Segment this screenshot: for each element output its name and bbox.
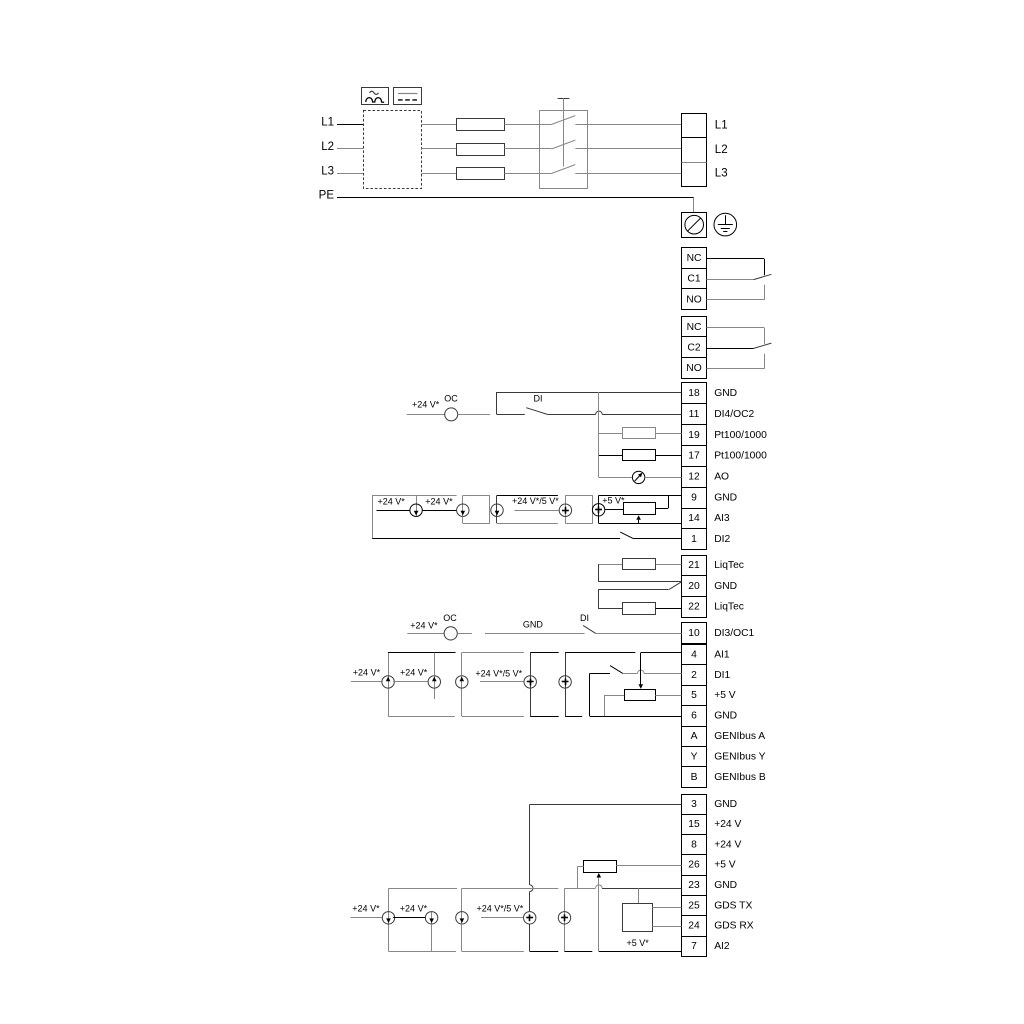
svg-text:Y: Y: [691, 751, 698, 762]
svg-text:+5 V*: +5 V*: [602, 495, 625, 505]
svg-text:6: 6: [691, 711, 697, 722]
svg-text:OC: OC: [444, 393, 458, 403]
svg-text:GND: GND: [714, 492, 737, 503]
svg-text:10: 10: [688, 628, 700, 639]
svg-text:GDS TX: GDS TX: [714, 900, 752, 911]
svg-text:GND: GND: [714, 799, 737, 810]
svg-text:DI3/OC1: DI3/OC1: [714, 628, 754, 639]
svg-text:4: 4: [691, 649, 697, 660]
svg-text:25: 25: [688, 900, 700, 911]
svg-text:+24 V*: +24 V*: [425, 497, 453, 507]
svg-text:NO: NO: [686, 363, 701, 374]
svg-text:NC: NC: [687, 322, 702, 333]
svg-text:L1: L1: [321, 117, 334, 129]
svg-text:11: 11: [689, 409, 700, 420]
svg-text:19: 19: [688, 430, 700, 441]
svg-text:+24 V: +24 V: [714, 839, 741, 850]
svg-text:14: 14: [688, 513, 700, 524]
svg-text:15: 15: [688, 819, 700, 830]
svg-text:L1: L1: [715, 119, 728, 131]
svg-text:5: 5: [691, 690, 697, 701]
svg-text:Pt100/1000: Pt100/1000: [714, 430, 767, 441]
svg-text:DI: DI: [534, 393, 543, 403]
svg-text:GENIbus B: GENIbus B: [714, 772, 766, 783]
svg-text:17: 17: [688, 451, 700, 462]
svg-text:AI1: AI1: [714, 649, 730, 660]
svg-text:DI: DI: [580, 613, 589, 623]
svg-text:26: 26: [688, 860, 700, 871]
svg-text:GND: GND: [714, 388, 737, 399]
svg-text:+24 V: +24 V: [714, 819, 741, 830]
svg-text:DI1: DI1: [714, 670, 730, 681]
svg-text:+24 V*: +24 V*: [412, 400, 440, 410]
svg-text:20: 20: [688, 581, 700, 592]
svg-text:21: 21: [688, 560, 700, 571]
svg-text:7: 7: [691, 941, 697, 952]
svg-text:18: 18: [688, 388, 700, 399]
svg-text:DI2: DI2: [714, 534, 730, 545]
svg-text:12: 12: [688, 472, 700, 483]
svg-text:GND: GND: [714, 880, 737, 891]
svg-text:GND: GND: [714, 711, 737, 722]
svg-text:C1: C1: [687, 274, 700, 285]
svg-text:LiqTec: LiqTec: [714, 560, 744, 571]
svg-text:L2: L2: [715, 144, 728, 156]
svg-text:+24 V*: +24 V*: [400, 667, 428, 677]
svg-text:+24 V*: +24 V*: [352, 904, 380, 914]
svg-text:GENIbus A: GENIbus A: [714, 731, 765, 742]
svg-text:+24 V*/5 V*: +24 V*/5 V*: [477, 904, 524, 914]
svg-text:AI3: AI3: [714, 513, 730, 524]
svg-text:L2: L2: [321, 141, 334, 153]
svg-text:+24 V*: +24 V*: [353, 667, 381, 677]
svg-text:23: 23: [688, 880, 700, 891]
svg-text:AI2: AI2: [714, 941, 730, 952]
svg-text:+24 V*: +24 V*: [410, 620, 438, 630]
svg-text:C2: C2: [687, 343, 700, 354]
svg-text:Pt100/1000: Pt100/1000: [714, 451, 767, 462]
svg-text:+5 V: +5 V: [714, 690, 736, 701]
svg-text:GND: GND: [714, 581, 737, 592]
svg-text:L3: L3: [715, 168, 728, 180]
svg-text:L3: L3: [321, 166, 334, 178]
svg-text:NC: NC: [687, 253, 702, 264]
svg-text:+24 V*/5 V*: +24 V*/5 V*: [512, 496, 559, 506]
svg-text:22: 22: [688, 602, 700, 613]
svg-text:24: 24: [688, 921, 700, 932]
svg-text:GENIbus Y: GENIbus Y: [714, 751, 765, 762]
svg-text:DI4/OC2: DI4/OC2: [714, 409, 754, 420]
svg-text:PE: PE: [319, 190, 335, 202]
svg-text:9: 9: [691, 492, 697, 503]
svg-text:AO: AO: [714, 472, 729, 483]
svg-text:+24 V*: +24 V*: [400, 904, 428, 914]
svg-text:8: 8: [691, 839, 697, 850]
svg-text:+5 V*: +5 V*: [627, 938, 650, 948]
svg-text:2: 2: [691, 670, 697, 681]
svg-text:LiqTec: LiqTec: [714, 602, 744, 613]
svg-text:GND: GND: [523, 620, 544, 630]
svg-text:OC: OC: [443, 613, 457, 623]
svg-text:A: A: [691, 731, 698, 742]
svg-text:+24 V*: +24 V*: [378, 497, 406, 507]
svg-text:NO: NO: [686, 294, 701, 305]
svg-text:+5 V: +5 V: [714, 860, 736, 871]
svg-text:3: 3: [691, 799, 697, 810]
svg-text:1: 1: [691, 534, 697, 545]
svg-text:GDS RX: GDS RX: [714, 921, 754, 932]
svg-text:+24 V*/5 V*: +24 V*/5 V*: [475, 669, 522, 679]
svg-text:B: B: [691, 772, 698, 783]
